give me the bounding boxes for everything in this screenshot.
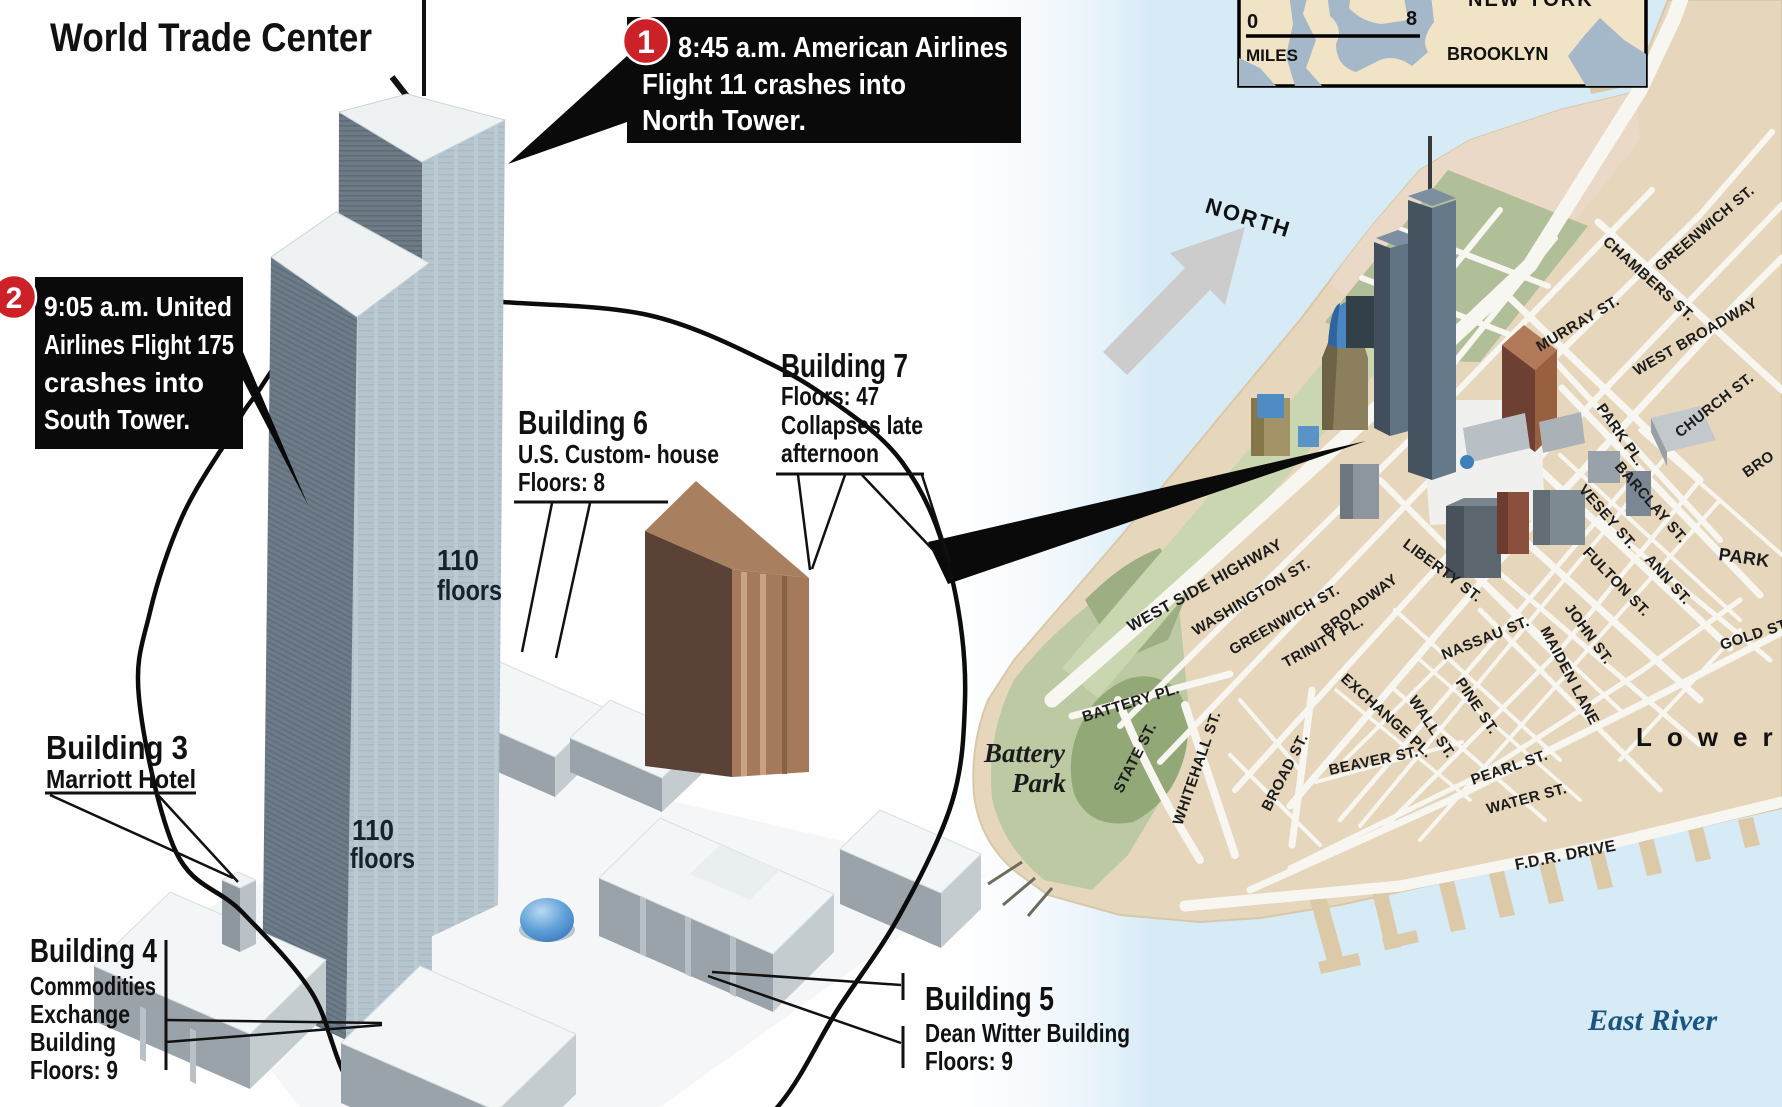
svg-text:Battery: Battery: [983, 738, 1066, 768]
svg-text:Marriott Hotel: Marriott Hotel: [46, 764, 196, 794]
svg-text:8:45 a.m. American Airlines: 8:45 a.m. American Airlines: [678, 32, 1008, 64]
svg-text:9:05 a.m. United: 9:05 a.m. United: [44, 291, 232, 322]
svg-text:Commodities: Commodities: [30, 971, 156, 1001]
svg-text:Dean Witter Building: Dean Witter Building: [925, 1018, 1130, 1048]
svg-text:8: 8: [1406, 8, 1417, 30]
svg-text:floors: floors: [350, 843, 415, 875]
svg-text:Building 5: Building 5: [925, 980, 1054, 1017]
svg-text:Floors: 47: Floors: 47: [781, 381, 879, 411]
svg-text:Building 7: Building 7: [781, 347, 908, 384]
svg-text:South Tower.: South Tower.: [44, 404, 190, 435]
svg-text:Park: Park: [1011, 768, 1067, 798]
svg-text:Flight 11 crashes into: Flight 11 crashes into: [642, 69, 906, 101]
svg-text:Building: Building: [30, 1027, 116, 1057]
svg-text:110: 110: [437, 545, 479, 577]
svg-text:2: 2: [6, 282, 23, 315]
svg-text:1: 1: [637, 24, 655, 60]
svg-text:MILES: MILES: [1246, 46, 1298, 65]
svg-text:afternoon: afternoon: [781, 438, 879, 468]
svg-text:floors: floors: [437, 575, 502, 607]
svg-text:Airlines Flight 175: Airlines Flight 175: [44, 329, 234, 360]
svg-text:North Tower.: North Tower.: [642, 105, 806, 137]
svg-text:Floors: 9: Floors: 9: [925, 1046, 1013, 1076]
svg-text:Collapses late: Collapses late: [781, 410, 923, 440]
svg-text:Building 4: Building 4: [30, 932, 158, 969]
svg-text:0: 0: [1247, 11, 1258, 33]
svg-text:crashes into: crashes into: [44, 367, 204, 398]
svg-text:Building 6: Building 6: [518, 404, 648, 441]
svg-text:World Trade Center: World Trade Center: [50, 16, 372, 60]
svg-text:Lower: Lower: [1636, 722, 1782, 752]
svg-text:Floors: 8: Floors: 8: [518, 467, 605, 497]
svg-text:NEW YORK: NEW YORK: [1468, 0, 1594, 11]
svg-text:Exchange: Exchange: [30, 999, 130, 1029]
svg-text:Floors: 9: Floors: 9: [30, 1055, 118, 1085]
svg-text:East River: East River: [1587, 1004, 1717, 1037]
svg-text:BROOKLYN: BROOKLYN: [1447, 44, 1548, 64]
svg-text:U.S. Custom- house: U.S. Custom- house: [518, 439, 719, 469]
svg-text:Building 3: Building 3: [46, 729, 188, 766]
